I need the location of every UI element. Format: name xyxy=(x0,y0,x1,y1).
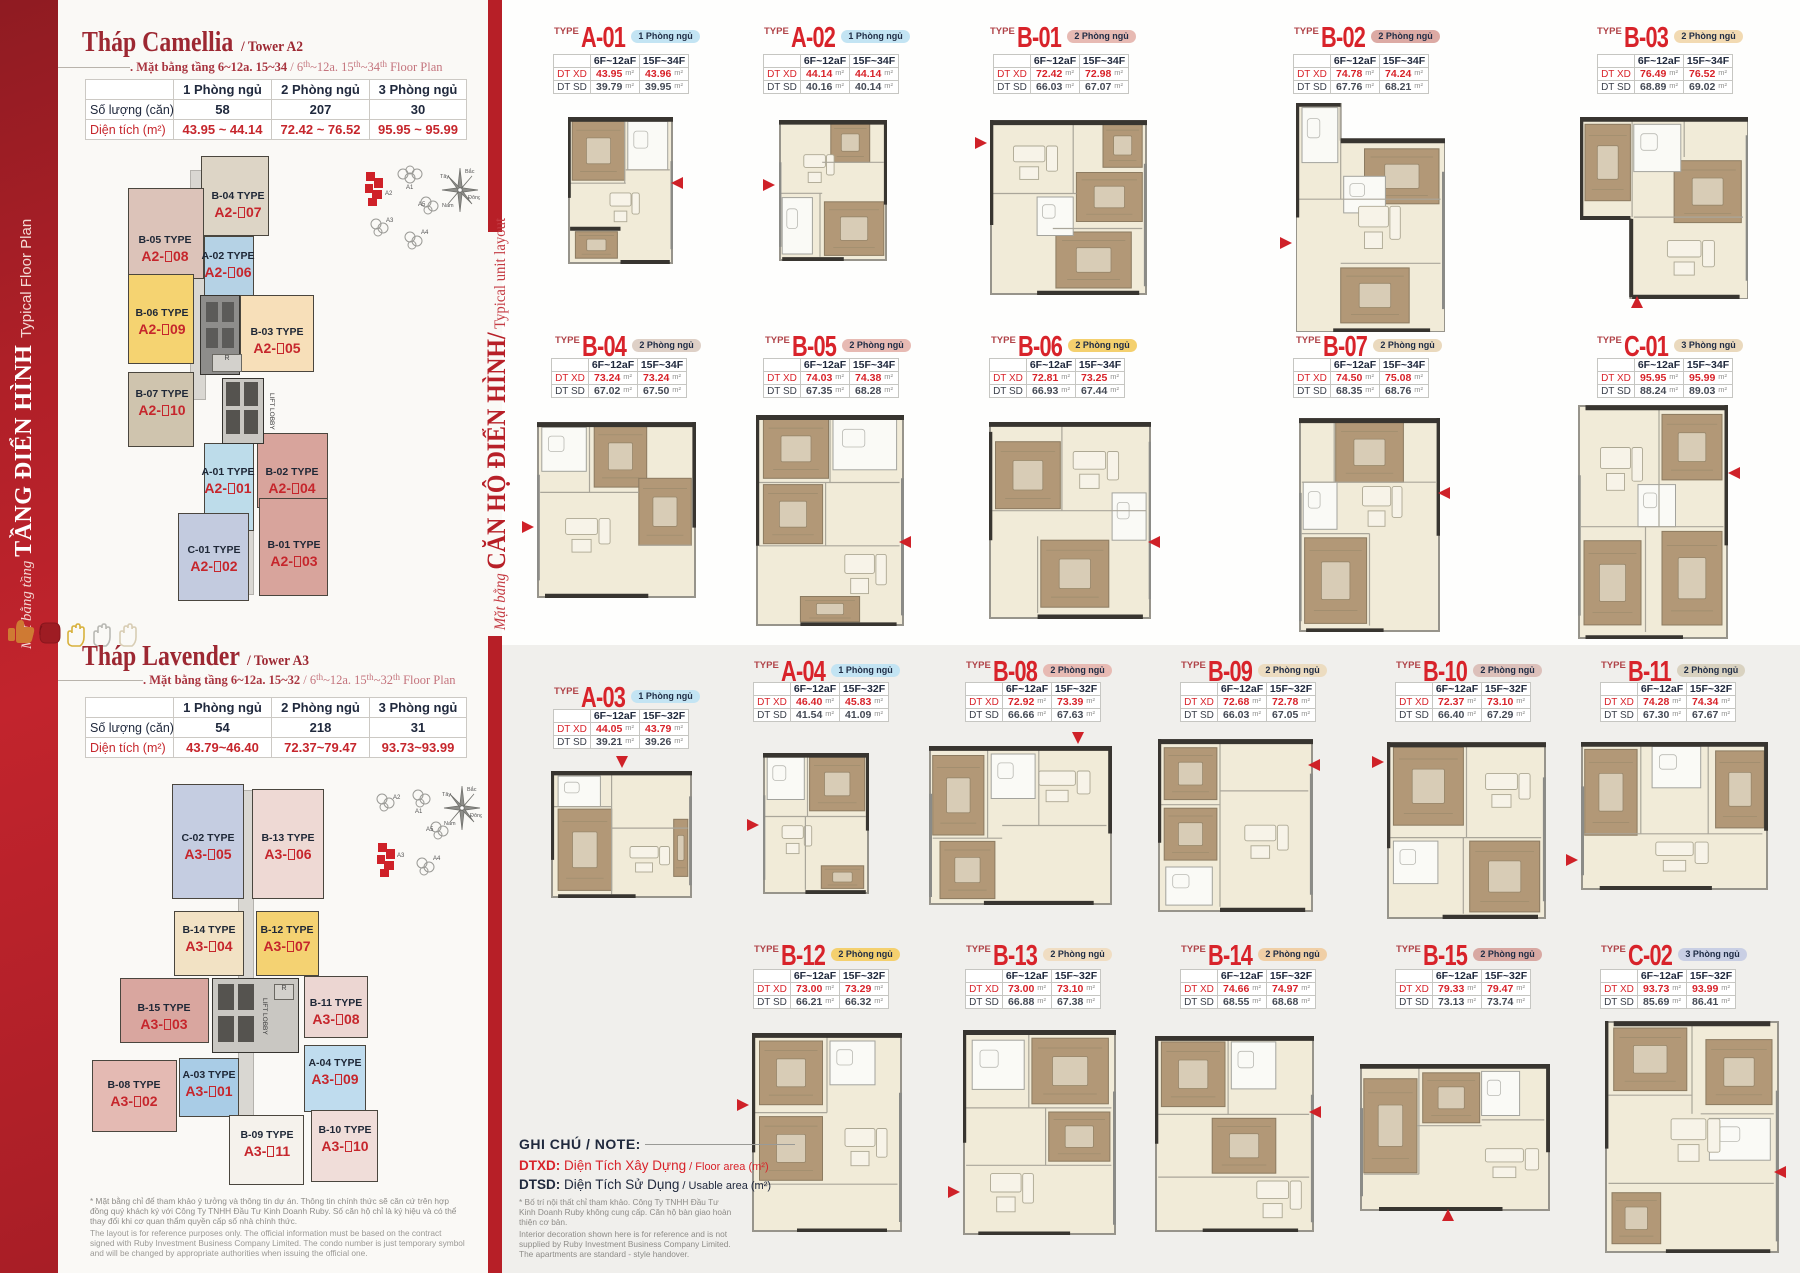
svg-text:A3: A3 xyxy=(397,853,405,859)
svg-text:Tây: Tây xyxy=(440,174,449,180)
svg-text:Đông: Đông xyxy=(468,195,480,201)
svg-text:A2: A2 xyxy=(385,191,393,197)
svg-text:A1: A1 xyxy=(415,809,423,815)
svg-text:A2: A2 xyxy=(393,795,401,801)
svg-text:A1: A1 xyxy=(406,185,414,191)
svg-text:A4: A4 xyxy=(433,856,441,862)
svg-text:Tây: Tây xyxy=(442,792,451,798)
svg-text:A5: A5 xyxy=(426,827,434,833)
svg-text:Bắc: Bắc xyxy=(465,168,475,175)
svg-text:Nam: Nam xyxy=(442,203,454,209)
svg-text:A3: A3 xyxy=(386,218,394,224)
svg-text:Đông: Đông xyxy=(470,813,482,819)
svg-text:A5: A5 xyxy=(418,202,426,208)
svg-text:A4: A4 xyxy=(421,230,429,236)
svg-text:Bắc: Bắc xyxy=(467,786,477,793)
svg-text:Nam: Nam xyxy=(444,821,456,827)
